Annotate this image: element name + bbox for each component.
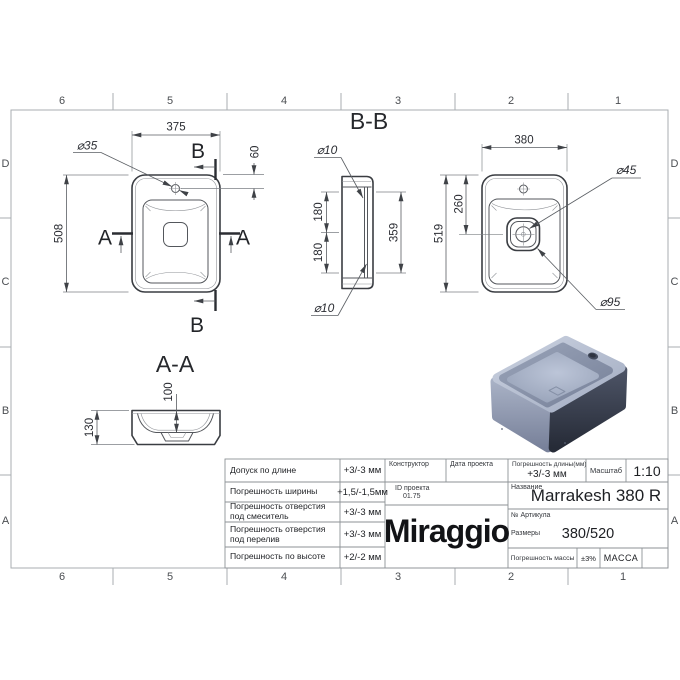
product-name-value: Marrakesh 380 R bbox=[508, 482, 668, 509]
section-aa-title: A-A bbox=[156, 351, 195, 377]
label-bb-hole-top: ⌀10 bbox=[317, 143, 338, 157]
dim-aa-basin-depth: 100 bbox=[163, 382, 175, 401]
tolerance-row-value: +3/-3 мм bbox=[340, 502, 385, 522]
zone-row-b-right: B bbox=[669, 404, 680, 418]
dim-plan-width: 375 bbox=[166, 122, 185, 134]
zone-col-3-bottom: 3 bbox=[390, 570, 406, 584]
tolerance-row-value: +3/-3 мм bbox=[340, 522, 385, 547]
dim-bb-spacing-bottom: 180 bbox=[313, 243, 325, 262]
project-date-label: Дата проекта bbox=[450, 461, 493, 469]
zone-col-6-top: 6 bbox=[54, 94, 70, 108]
label-drain-diameter: ⌀45 bbox=[616, 163, 637, 177]
view-section-aa: A-A 130 100 bbox=[84, 351, 220, 445]
section-label-a-left: A bbox=[98, 227, 112, 250]
dim-bb-spacing-top: 180 bbox=[313, 202, 325, 221]
brand-logo: Miraggio bbox=[385, 506, 508, 556]
tolerance-row-value: +2/-2 мм bbox=[340, 547, 385, 567]
scale-label: Масштаб bbox=[586, 459, 626, 482]
section-label-a-right: A bbox=[236, 227, 250, 250]
zone-row-b-left: B bbox=[0, 404, 11, 418]
zone-col-2-top: 2 bbox=[503, 94, 519, 108]
constructor-label: Конструктор bbox=[389, 461, 429, 469]
zone-col-6-bottom: 6 bbox=[54, 570, 70, 584]
zone-col-1-bottom: 1 bbox=[615, 570, 631, 584]
zone-col-5-bottom: 5 bbox=[162, 570, 178, 584]
dim-aa-total-height: 130 bbox=[84, 418, 96, 437]
dim-bottom-drain-offset: 260 bbox=[454, 194, 466, 213]
project-id-value: 01.75 bbox=[403, 493, 421, 501]
view-plan: 375 508 60 ⌀35 B B A A bbox=[54, 122, 265, 338]
label-hole-diameter: ⌀35 bbox=[77, 139, 98, 153]
sink-3d-render bbox=[495, 341, 623, 448]
drawing-linework: 375 508 60 ⌀35 B B A A B-B bbox=[0, 0, 680, 680]
zone-col-1-top: 1 bbox=[610, 94, 626, 108]
zone-col-4-top: 4 bbox=[276, 94, 292, 108]
zone-col-2-bottom: 2 bbox=[503, 570, 519, 584]
tolerance-row-value: +3/-3 мм bbox=[340, 459, 385, 482]
zone-row-a-left: A bbox=[0, 514, 11, 528]
section-label-b-bottom: B bbox=[190, 314, 204, 337]
dim-bottom-width: 380 bbox=[514, 135, 533, 147]
dim-bb-inner-length: 359 bbox=[389, 223, 401, 242]
scale-value: 1:10 bbox=[626, 459, 668, 482]
view-bottom: 380 519 260 ⌀45 ⌀95 bbox=[434, 135, 642, 310]
length-tolerance-value: +3/-3 мм bbox=[508, 466, 586, 482]
tolerance-row-name: Погрешность ширины bbox=[226, 482, 340, 502]
view-section-bb: B-B 180 180 359 ⌀10 ⌀10 bbox=[311, 108, 406, 316]
mass-tolerance-value: ±3% bbox=[577, 548, 600, 568]
zone-col-5-top: 5 bbox=[162, 94, 178, 108]
dim-plan-hole-offset: 60 bbox=[250, 146, 262, 159]
zone-row-a-right: A bbox=[669, 514, 680, 528]
zone-col-4-bottom: 4 bbox=[276, 570, 292, 584]
project-id-label: ID проекта bbox=[395, 485, 430, 493]
zone-col-3-top: 3 bbox=[390, 94, 406, 108]
mass-tolerance-label: Погрешность массы bbox=[508, 548, 577, 568]
tolerance-row-name: Погрешность отверстия под смеситель bbox=[226, 502, 340, 522]
tolerance-row-name: Погрешность отверстия под перелив bbox=[226, 522, 340, 547]
tolerance-row-value: +1,5/-1,5мм bbox=[340, 482, 385, 502]
zone-row-d-right: D bbox=[669, 157, 680, 171]
tolerance-row-name: Погрешность по высоте bbox=[226, 547, 340, 567]
dimensions-value: 380/520 bbox=[508, 522, 668, 546]
drawing-sheet: 375 508 60 ⌀35 B B A A B-B bbox=[0, 0, 680, 680]
label-drain-outer-diameter: ⌀95 bbox=[600, 295, 621, 309]
zone-row-d-left: D bbox=[0, 157, 11, 171]
article-number-label: № Артикула bbox=[511, 512, 550, 520]
tolerance-row-name: Допуск по длине bbox=[226, 459, 340, 482]
section-bb-title: B-B bbox=[350, 108, 388, 134]
dim-bottom-height: 519 bbox=[434, 224, 446, 243]
dim-plan-height: 508 bbox=[54, 224, 66, 243]
mass-label: МАССА bbox=[600, 548, 642, 568]
zone-row-c-right: C bbox=[669, 275, 680, 289]
section-label-b-top: B bbox=[191, 140, 205, 163]
zone-row-c-left: C bbox=[0, 275, 11, 289]
label-bb-hole-bottom: ⌀10 bbox=[314, 301, 335, 315]
